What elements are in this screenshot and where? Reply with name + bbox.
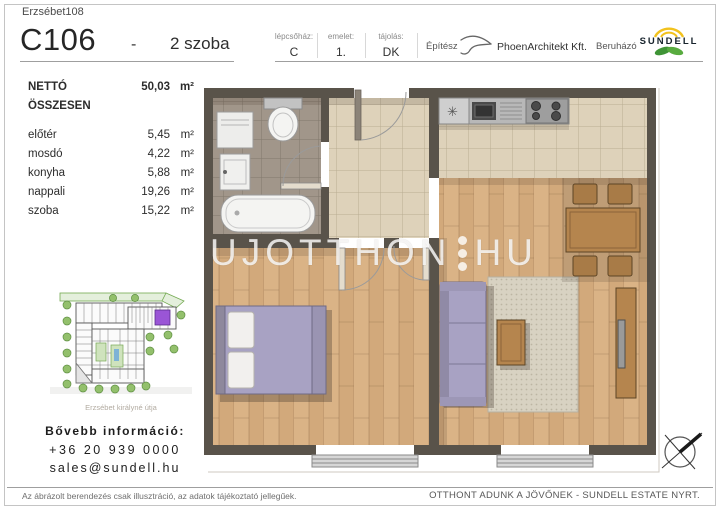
contact-title: Bővebb információ: <box>24 424 206 438</box>
chair <box>608 184 632 204</box>
chair <box>573 184 597 204</box>
meta-floor-value: 1. <box>318 45 364 59</box>
project-name: Erzsébet108 <box>22 6 84 18</box>
developer-label: Beruházó <box>596 41 637 52</box>
dining-set <box>562 178 650 282</box>
room-unit: m² <box>170 126 194 145</box>
room-name: nappali <box>28 183 126 202</box>
room-area: 15,22 <box>126 202 170 221</box>
footer-divider <box>7 487 713 488</box>
room-area: 4,22 <box>126 145 170 164</box>
unit-separator: - <box>131 36 136 54</box>
entrance-door <box>355 90 361 140</box>
net-total-row: NETTÓ ÖSSZESEN 50,03 m² <box>28 78 194 116</box>
area-row: mosdó 4,22 m² <box>28 145 194 164</box>
tv-stand <box>616 288 636 398</box>
area-table: NETTÓ ÖSSZESEN 50,03 m² előtér 5,45 m² m… <box>28 78 194 221</box>
room-unit: m² <box>170 202 194 221</box>
bed <box>216 306 326 394</box>
stove <box>526 99 568 123</box>
drain-symbol: ✳ <box>447 104 458 119</box>
room-name: szoba <box>28 202 126 221</box>
faucet <box>223 170 227 174</box>
meta-orientation-value: DK <box>366 45 416 59</box>
bedroom-furniture <box>216 306 332 402</box>
sundell-logo: SUNDELL <box>636 26 702 58</box>
flyer-page: Erzsébet108 C106 - 2 szoba lépcsőház: C … <box>0 0 720 510</box>
footer-slogan: OTTHONT ADUNK A JÖVŐNEK - SUNDELL ESTATE… <box>429 490 700 501</box>
room-area: 5,45 <box>126 126 170 145</box>
room-unit: m² <box>170 145 194 164</box>
phoenix-logo-icon <box>458 32 494 56</box>
floor-plan: ✳ <box>204 82 662 484</box>
area-row: szoba 15,22 m² <box>28 202 194 221</box>
bathtub <box>221 195 315 232</box>
net-total-value: 50,03 <box>126 78 170 116</box>
unit-id: C106 <box>20 22 96 58</box>
watermark-left: UJOTTHON <box>210 232 451 274</box>
bedroom-window <box>312 455 418 467</box>
living-room-window <box>497 455 593 467</box>
area-row: előtér 5,45 m² <box>28 126 194 145</box>
unit-type: 2 szoba <box>170 34 230 54</box>
meta-orientation-label: tájolás: <box>366 32 416 41</box>
header-divider <box>275 61 703 62</box>
architect-name: PhoenArchitekt Kft. <box>497 41 587 53</box>
net-total-label: NETTÓ ÖSSZESEN <box>28 78 126 116</box>
net-total-unit: m² <box>170 78 194 116</box>
sundell-leaves-icon <box>651 46 687 58</box>
contact-block: Bővebb információ: +36 20 939 0000 sales… <box>24 424 206 475</box>
windows <box>312 455 593 467</box>
watermark-right: HU <box>474 232 537 274</box>
hall-floor <box>329 98 429 240</box>
room-name: előtér <box>28 126 126 145</box>
meta-staircase-label: lépcsőház: <box>272 32 316 41</box>
site-plan <box>50 291 192 403</box>
disclaimer-text: Az ábrázolt berendezés csak illusztráció… <box>22 491 297 501</box>
chair <box>573 256 597 276</box>
compass-icon <box>650 424 710 484</box>
title-divider <box>20 61 234 62</box>
meta-staircase-value: C <box>272 45 316 59</box>
contact-email: sales@sundell.hu <box>24 461 206 475</box>
meta-separator <box>417 33 418 58</box>
room-unit: m² <box>170 183 194 202</box>
meta-floor: emelet: 1. <box>318 32 364 59</box>
kitchen-counter: ✳ <box>439 98 569 124</box>
coffee-table <box>497 320 530 370</box>
meta-orientation: tájolás: DK <box>366 32 416 59</box>
meta-floor-label: emelet: <box>318 32 364 41</box>
contact-phone: +36 20 939 0000 <box>24 443 206 457</box>
dining-table <box>566 208 640 252</box>
pillow <box>228 352 254 388</box>
sofa <box>440 282 494 408</box>
chair <box>608 256 632 276</box>
watermark-dots-icon <box>458 236 467 271</box>
room-unit: m² <box>170 164 194 183</box>
site-plan-caption: Erzsébet királyné útja <box>50 403 192 412</box>
room-name: mosdó <box>28 145 126 164</box>
room-name: konyha <box>28 164 126 183</box>
watermark: UJOTTHON HU <box>210 232 538 274</box>
pillow <box>228 312 254 348</box>
bathroom-door <box>281 183 321 189</box>
area-row: konyha 5,88 m² <box>28 164 194 183</box>
architect-label: Építész <box>426 41 458 52</box>
room-area: 5,88 <box>126 164 170 183</box>
tv <box>618 320 625 368</box>
highlighted-unit <box>155 310 170 325</box>
washing-machine <box>217 112 253 148</box>
area-row: nappali 19,26 m² <box>28 183 194 202</box>
meta-staircase: lépcsőház: C <box>272 32 316 59</box>
room-area: 19,26 <box>126 183 170 202</box>
